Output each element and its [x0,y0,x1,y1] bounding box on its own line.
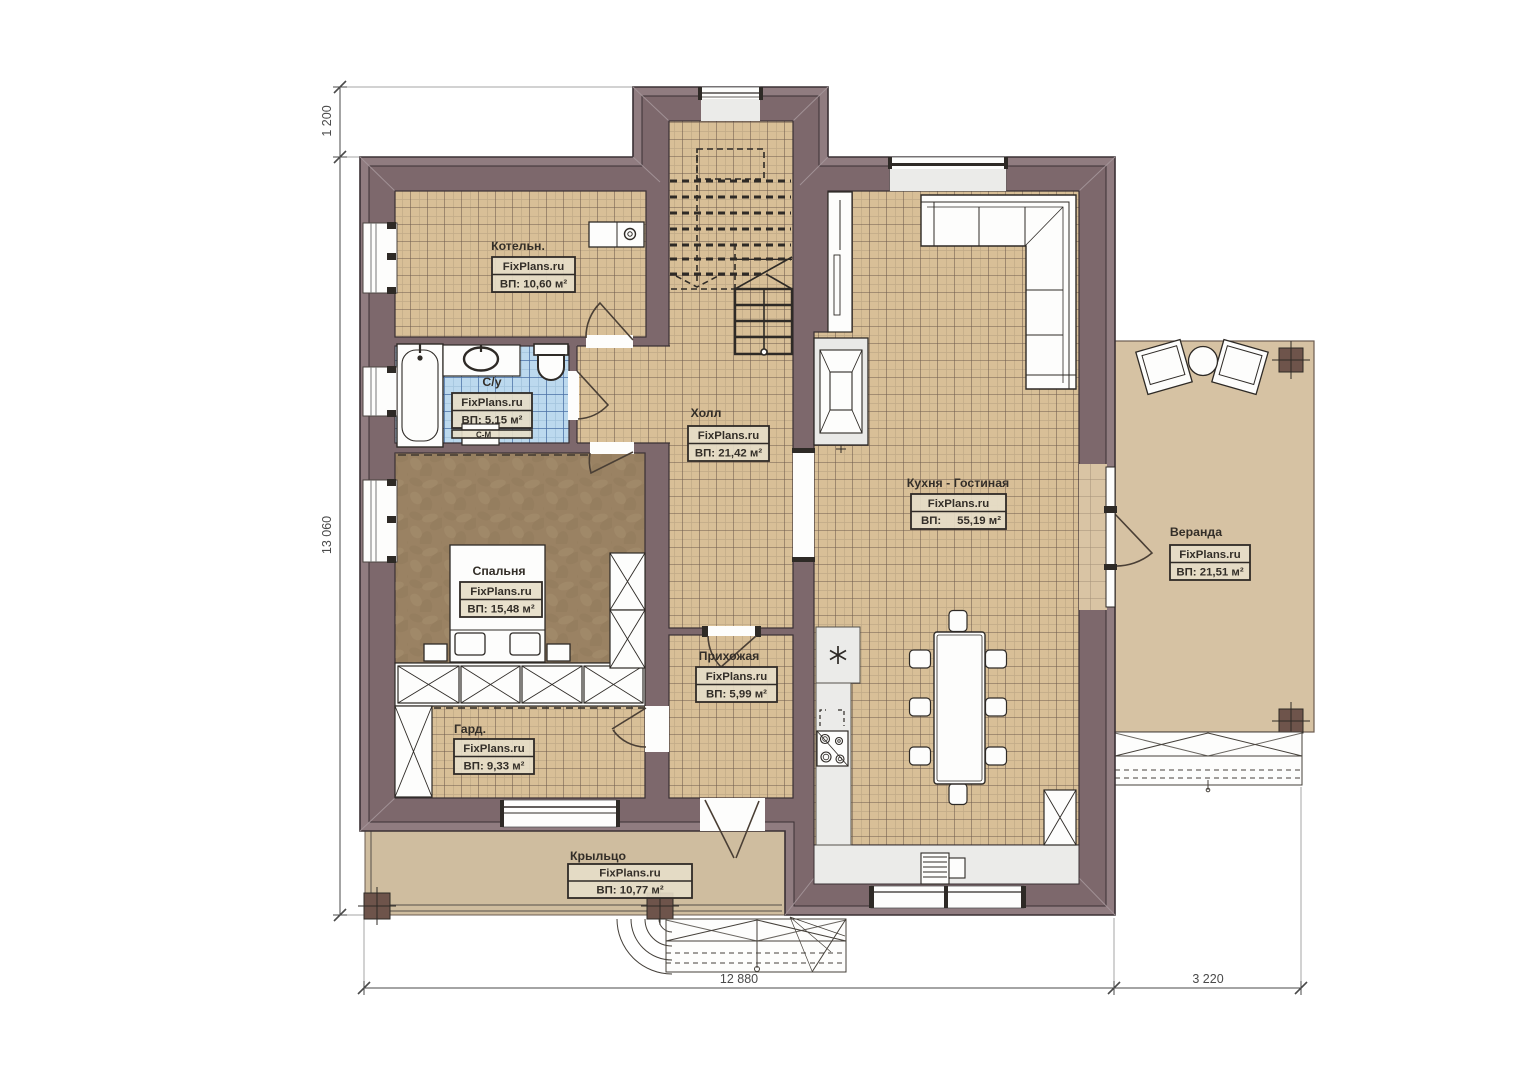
svg-text:FixPlans.ru: FixPlans.ru [1179,549,1240,561]
svg-text:ВП: 9,33 м²: ВП: 9,33 м² [464,760,525,772]
svg-text:С-М: С-М [476,431,491,440]
svg-text:ВП: 5,99 м²: ВП: 5,99 м² [706,688,767,700]
svg-text:ВП: 10,60 м²: ВП: 10,60 м² [500,278,567,290]
svg-text:FixPlans.ru: FixPlans.ru [461,397,522,409]
svg-text:12 880: 12 880 [720,972,758,986]
svg-text:FixPlans.ru: FixPlans.ru [463,743,524,755]
svg-text:Холл: Холл [691,406,722,420]
svg-text:Спальня: Спальня [472,564,525,578]
svg-text:FixPlans.ru: FixPlans.ru [706,671,767,683]
svg-text:FixPlans.ru: FixPlans.ru [928,498,989,510]
svg-text:ВП: 15,48 м²: ВП: 15,48 м² [467,603,534,615]
svg-text:3 220: 3 220 [1192,972,1223,986]
svg-text:FixPlans.ru: FixPlans.ru [503,261,564,273]
svg-text:FixPlans.ru: FixPlans.ru [470,586,531,598]
svg-text:Гард.: Гард. [454,722,486,736]
svg-text:С/у: С/у [482,375,501,389]
svg-text:ВП:: ВП: [921,515,941,527]
svg-text:Кухня - Гостиная: Кухня - Гостиная [907,476,1009,490]
svg-text:Веранда: Веранда [1170,525,1222,539]
svg-text:Прихожая: Прихожая [699,649,760,663]
svg-text:ВП: 10,77 м²: ВП: 10,77 м² [596,885,663,897]
svg-text:ВП: 21,51 м²: ВП: 21,51 м² [1176,566,1243,578]
svg-text:1 200: 1 200 [320,105,334,136]
svg-text:FixPlans.ru: FixPlans.ru [599,868,660,880]
svg-text:13 060: 13 060 [320,516,334,554]
svg-text:Котельн.: Котельн. [491,239,545,253]
svg-text:FixPlans.ru: FixPlans.ru [698,430,759,442]
svg-text:ВП: 21,42 м²: ВП: 21,42 м² [695,447,762,459]
svg-text:55,19 м²: 55,19 м² [957,515,1001,527]
svg-text:Крыльцо: Крыльцо [570,849,626,863]
